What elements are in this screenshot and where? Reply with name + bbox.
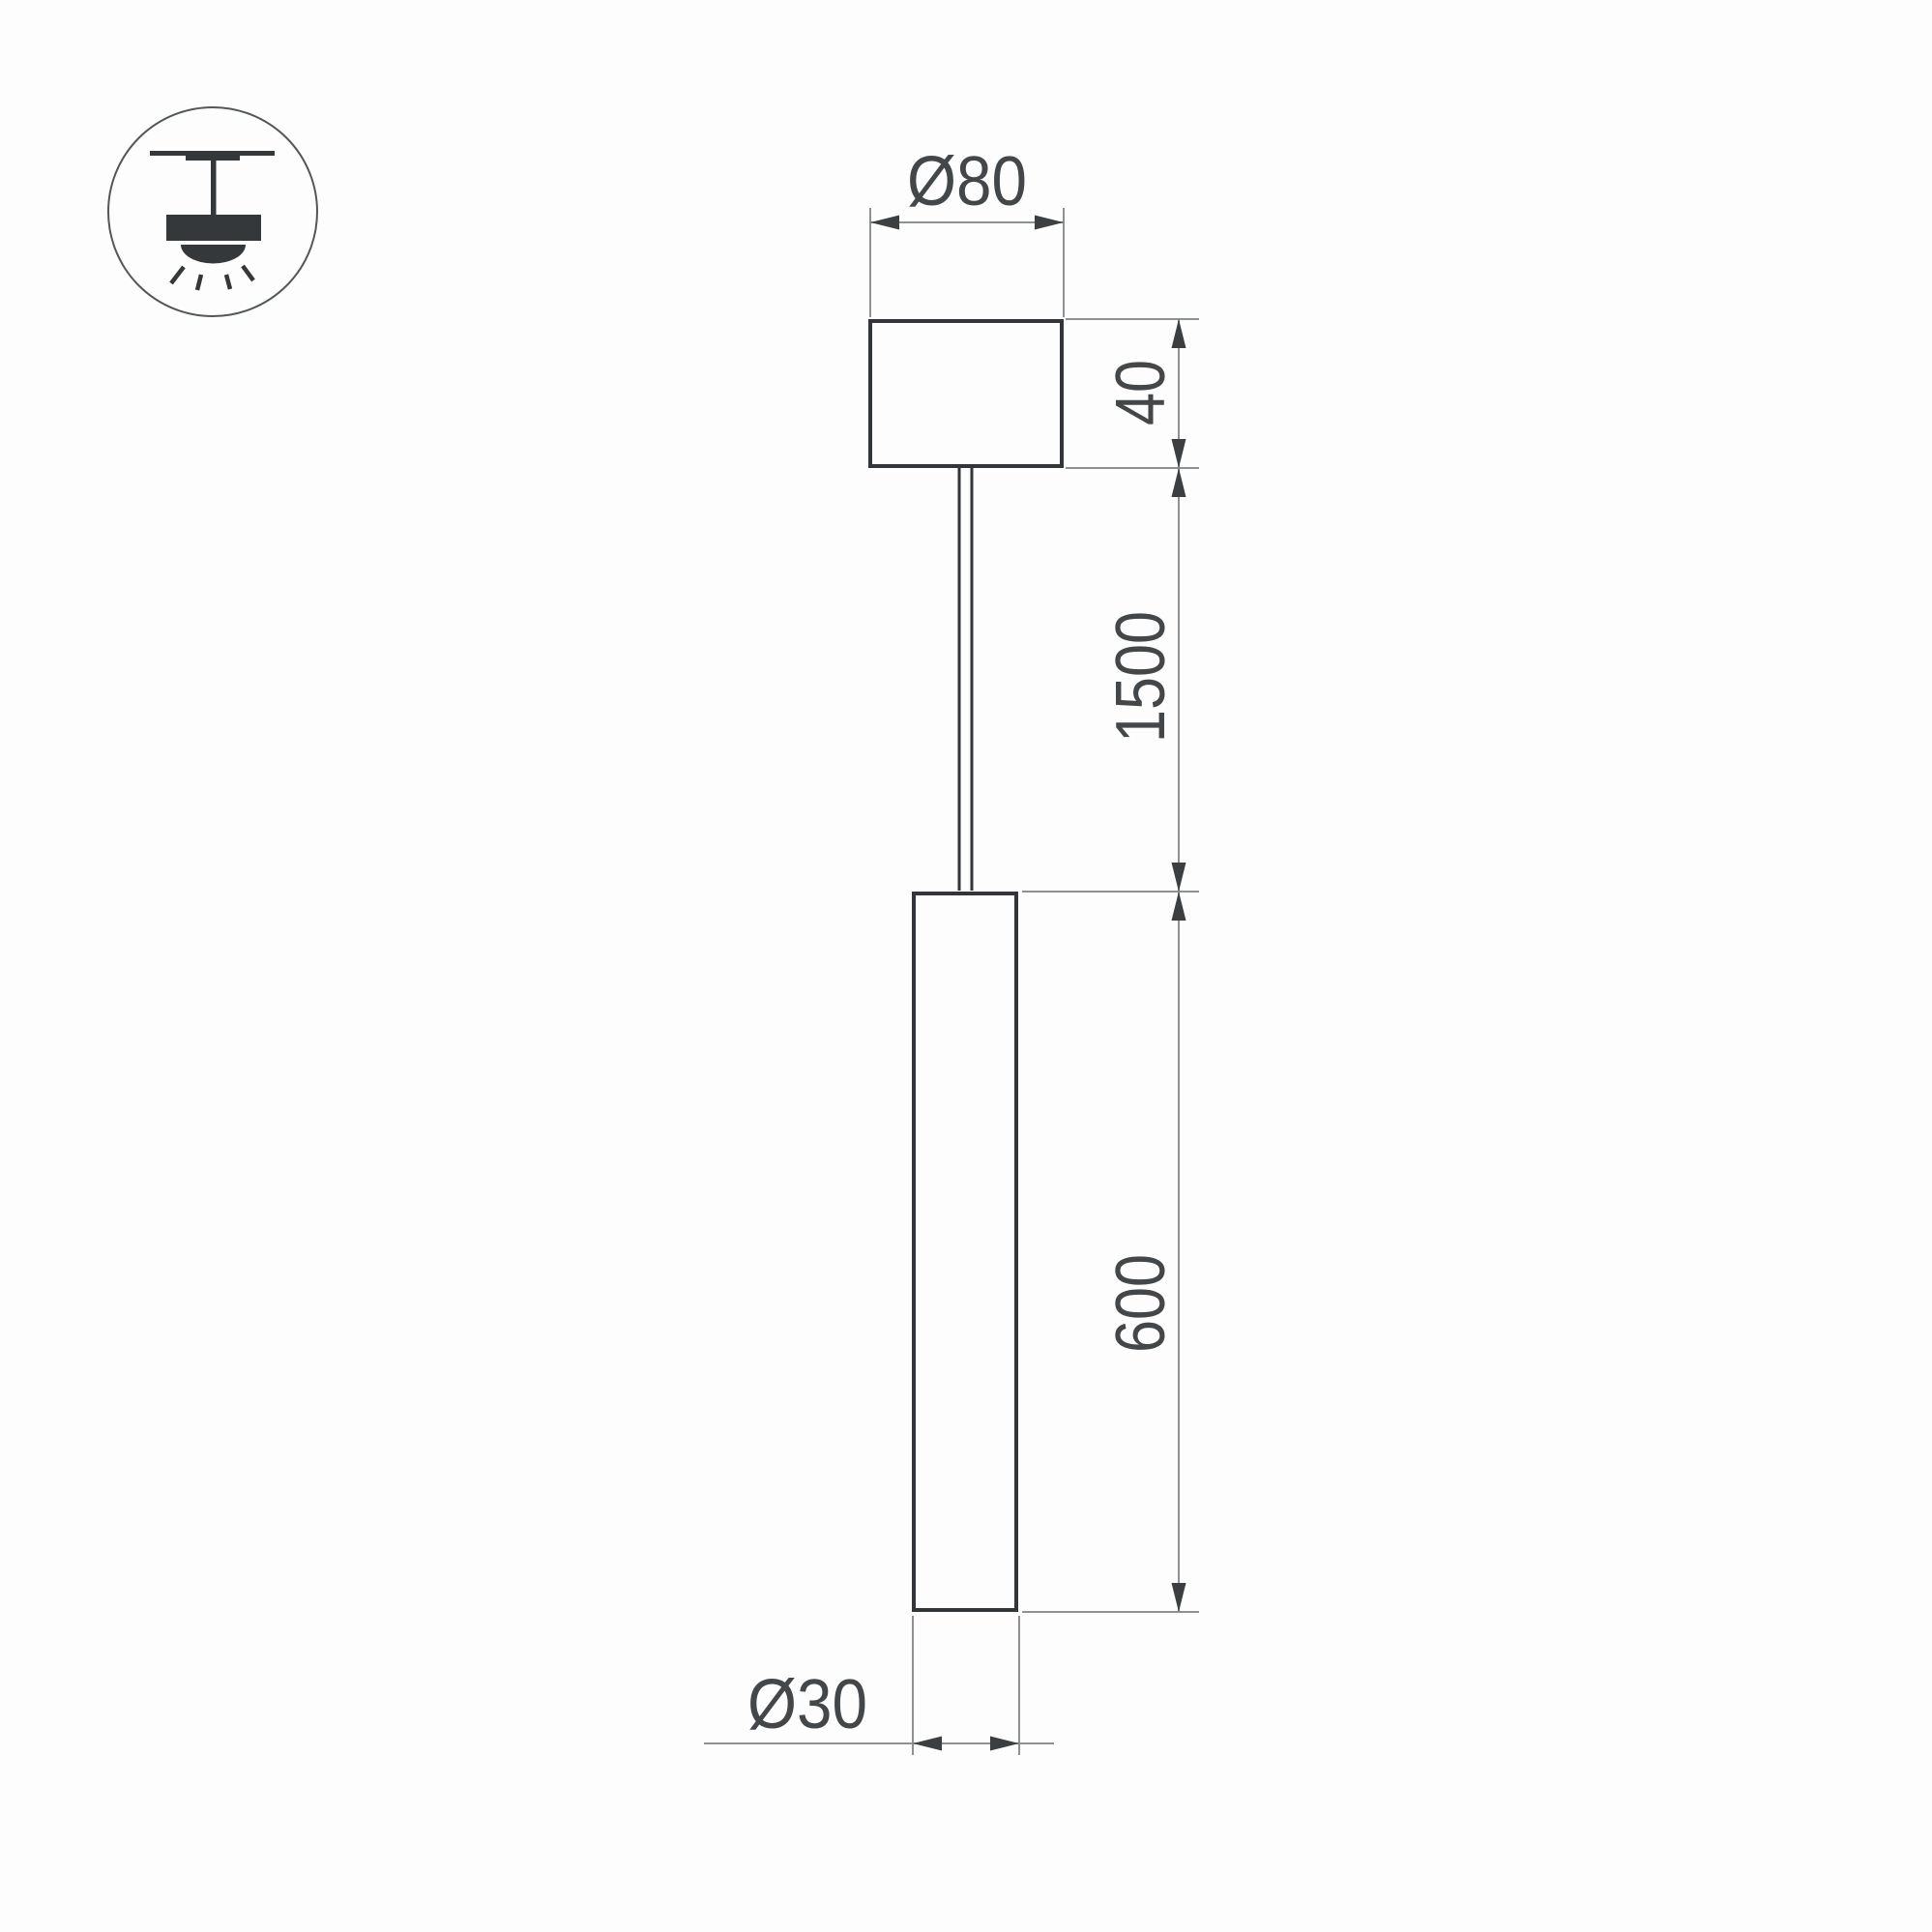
suspension-length-label: 1500	[1102, 611, 1180, 743]
canopy-diameter-label: Ø80	[907, 143, 1027, 220]
icon-suspension-stem	[211, 159, 217, 217]
tube-diameter-label: Ø30	[747, 1666, 867, 1743]
drawing-canvas: Ø80 40 1500 600	[0, 0, 1932, 1932]
canopy-outline	[870, 321, 1062, 466]
tube-length-label: 600	[1102, 1254, 1180, 1353]
lamp-tube-outline	[914, 893, 1016, 1610]
icon-lamp-body	[166, 215, 261, 241]
pendant-ceiling-light-icon	[108, 107, 317, 316]
canopy-height-label: 40	[1102, 360, 1180, 425]
dimension-drawing-svg: Ø80 40 1500 600	[0, 0, 1932, 1932]
